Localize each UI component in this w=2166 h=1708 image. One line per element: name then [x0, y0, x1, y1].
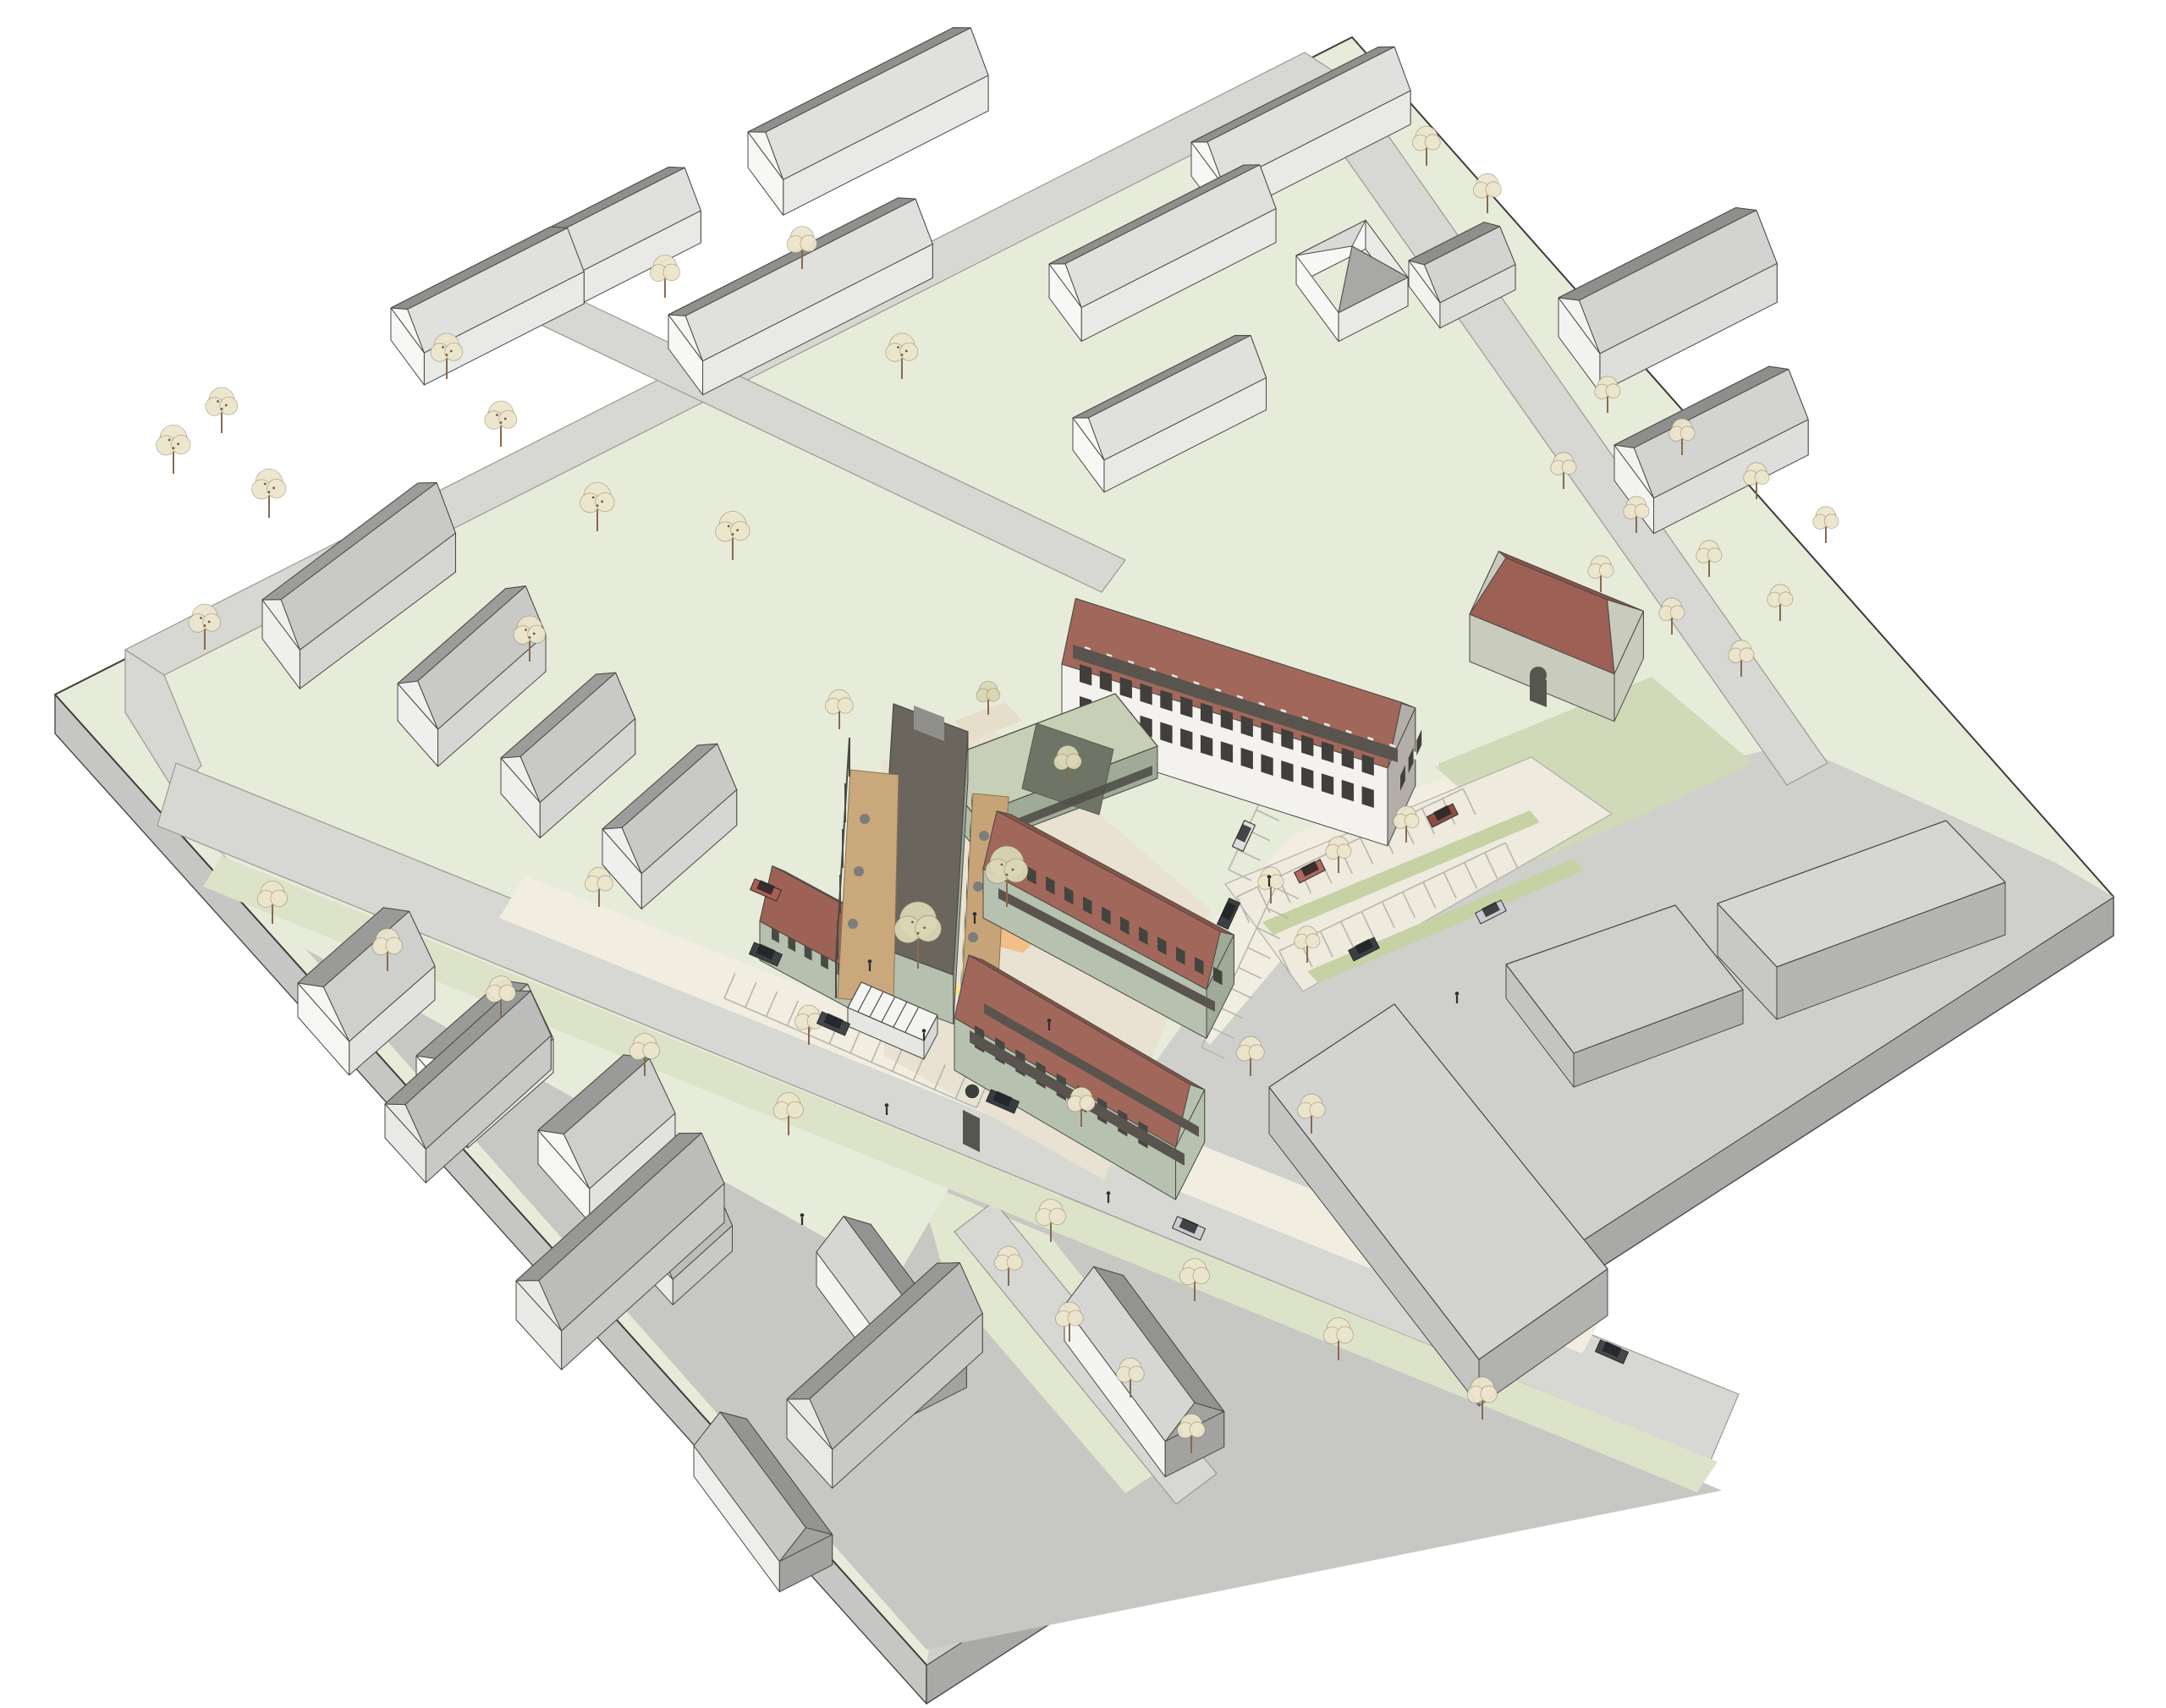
tree [650, 255, 679, 298]
site-model-figure [0, 0, 2166, 1708]
tree [252, 469, 286, 518]
tree [1813, 507, 1839, 543]
context-ne-gable-1 [1559, 208, 1777, 393]
tree [485, 401, 517, 447]
context-nw-slab-5 [391, 227, 584, 385]
tree [206, 387, 238, 433]
axonometric-site-plan [0, 0, 2166, 1708]
context-nw-slab-3 [748, 28, 988, 215]
tree [157, 425, 190, 474]
